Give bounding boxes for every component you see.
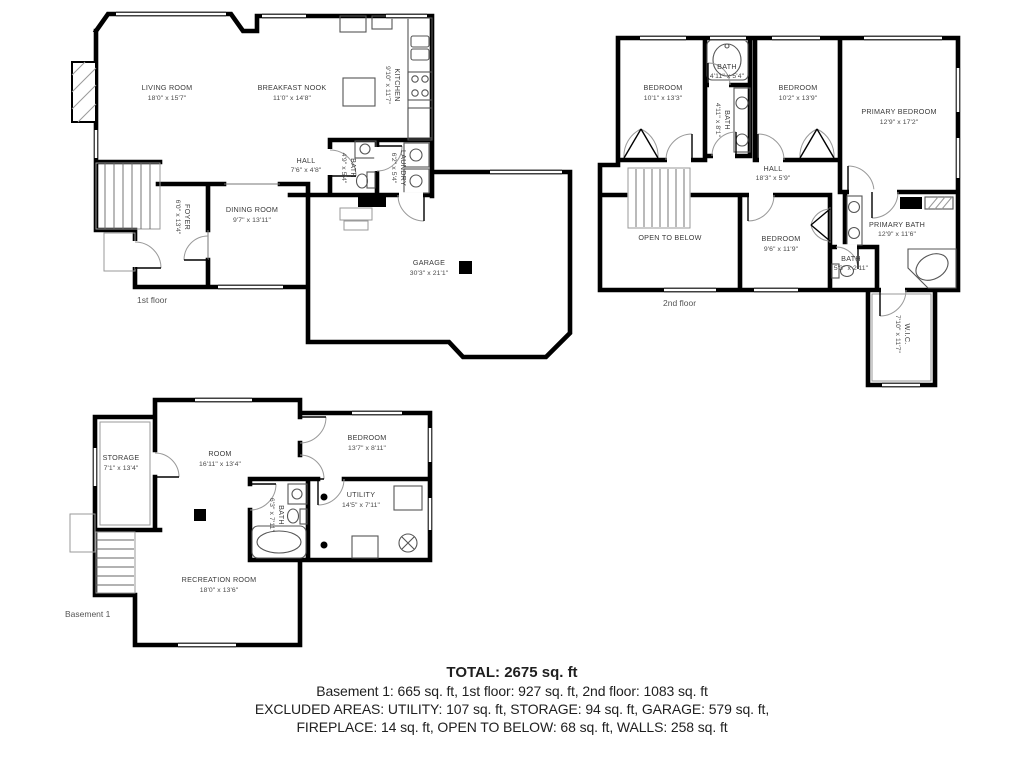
- recreation-room-label: RECREATION ROOM: [182, 575, 257, 584]
- foyer-dims: 6'0" x 13'4": [174, 200, 181, 235]
- hall2-label: HALL: [764, 164, 783, 173]
- second-floor-labels: BEDROOM 10'1" x 13'3" BATH 4'11" x 5'4" …: [638, 62, 936, 354]
- bedroom3-dims: 9'6" x 11'9": [764, 246, 799, 253]
- living-room-dims: 18'0" x 15'7": [148, 95, 187, 102]
- dining-room-label: DINING ROOM: [226, 205, 278, 214]
- open-to-below-label: OPEN TO BELOW: [638, 233, 701, 242]
- bedroom1-label: BEDROOM: [644, 83, 683, 92]
- first-floor-caption: 1st floor: [137, 295, 167, 305]
- floor-areas: Basement 1: 665 sq. ft, 1st floor: 927 s…: [0, 682, 1024, 700]
- laundry-label: LAUNDRY: [399, 150, 408, 186]
- bath-small-label: BATH: [841, 254, 861, 263]
- garage-step: [340, 196, 386, 230]
- first-bath-dims: 4'9" x 5'4": [340, 153, 347, 184]
- first-floor-plan: LIVING ROOM 18'0" x 15'7" BREAKFAST NOOK…: [60, 5, 580, 365]
- hall-label: HALL: [297, 156, 316, 165]
- first-floor-stairs: [96, 163, 160, 229]
- first-bath-label: BATH: [349, 158, 358, 178]
- utility-label: UTILITY: [347, 490, 376, 499]
- storage-label: STORAGE: [103, 453, 140, 462]
- primary-bath-label: PRIMARY BATH: [869, 220, 925, 229]
- primary-bedroom-dims: 12'9" x 17'2": [880, 119, 919, 126]
- primary-bedroom-label: PRIMARY BEDROOM: [861, 107, 936, 116]
- basement-plan: STORAGE 7'1" x 13'4" ROOM 16'11" x 13'4"…: [60, 395, 440, 655]
- excluded-areas-2: FIREPLACE: 14 sq. ft, OPEN TO BELOW: 68 …: [0, 718, 1024, 736]
- second-floor-stairs: [628, 168, 690, 228]
- bath-top-label: BATH: [717, 62, 737, 71]
- second-floor-caption: 2nd floor: [663, 298, 696, 308]
- primary-bath-dims: 12'9" x 11'6": [878, 231, 917, 238]
- bedroom1-dims: 10'1" x 13'3": [644, 95, 683, 102]
- total-area: TOTAL: 2675 sq. ft: [0, 663, 1024, 682]
- room-dims: 16'11" x 13'4": [199, 461, 241, 468]
- utility-dims: 14'5" x 7'11": [342, 502, 381, 509]
- window-well: [70, 514, 95, 552]
- basement-doors: [155, 417, 344, 510]
- bath-top-dims: 4'11" x 5'4": [710, 73, 745, 80]
- wic-dims: 7'10" x 11'7": [894, 315, 901, 354]
- bedroom2-label: BEDROOM: [779, 83, 818, 92]
- living-room-label: LIVING ROOM: [142, 83, 193, 92]
- basement-bedroom-dims: 13'7" x 8'11": [348, 445, 387, 452]
- area-summary: TOTAL: 2675 sq. ft Basement 1: 665 sq. f…: [0, 663, 1024, 736]
- primary-bath-fixtures: [832, 196, 956, 288]
- wic-label: W.I.C.: [903, 323, 912, 344]
- porch-steps: [104, 233, 135, 271]
- garage-fireplace-marker: [459, 261, 472, 274]
- room-label: ROOM: [208, 449, 231, 458]
- bath-mid-label: BATH: [723, 110, 732, 130]
- garage-dims: 30'3" x 21'1": [410, 270, 449, 277]
- fireplace: [72, 62, 96, 122]
- basement-stairs: [96, 532, 135, 593]
- dining-room-dims: 9'7" x 13'11": [233, 217, 272, 224]
- floorplan-page: LIVING ROOM 18'0" x 15'7" BREAKFAST NOOK…: [0, 0, 1024, 768]
- bedroom2-dims: 10'2" x 13'9": [779, 95, 818, 102]
- breakfast-nook-label: BREAKFAST NOOK: [258, 83, 327, 92]
- first-floor-walls: [96, 14, 570, 357]
- recreation-room-dims: 18'0" x 13'6": [200, 587, 239, 594]
- basement-labels: STORAGE 7'1" x 13'4" ROOM 16'11" x 13'4"…: [65, 433, 387, 619]
- chimney-solid: [900, 197, 922, 209]
- hall2-dims: 18'3" x 5'9": [756, 175, 791, 182]
- foyer-label: FOYER: [183, 204, 192, 230]
- storage-dims: 7'1" x 13'4": [104, 465, 139, 472]
- second-floor-plan: BEDROOM 10'1" x 13'3" BATH 4'11" x 5'4" …: [590, 25, 980, 395]
- hall-dims: 7'6" x 4'8": [291, 167, 322, 174]
- bedroom3-label: BEDROOM: [762, 234, 801, 243]
- bath-mid-dims: 4'11" x 8'1": [714, 103, 721, 138]
- basement-caption: Basement 1: [65, 609, 111, 619]
- excluded-areas-1: EXCLUDED AREAS: UTILITY: 107 sq. ft, STO…: [0, 700, 1024, 718]
- kitchen-dims: 9'10" x 11'7": [384, 66, 391, 105]
- basement-bedroom-label: BEDROOM: [348, 433, 387, 442]
- basement-bath-label: BATH: [277, 505, 286, 525]
- garage-label: GARAGE: [413, 258, 445, 267]
- basement-fireplace-marker: [194, 509, 206, 521]
- storage-shelving: [100, 422, 150, 525]
- basement-bath-dims: 6'3" x 7'11": [268, 498, 275, 533]
- bath-small-dims: 5'3" x 2'11": [834, 265, 869, 272]
- breakfast-nook-dims: 11'0" x 14'8": [273, 95, 312, 102]
- laundry-dims: 6'2" x 5'4": [390, 153, 397, 184]
- kitchen-label: KITCHEN: [393, 68, 402, 101]
